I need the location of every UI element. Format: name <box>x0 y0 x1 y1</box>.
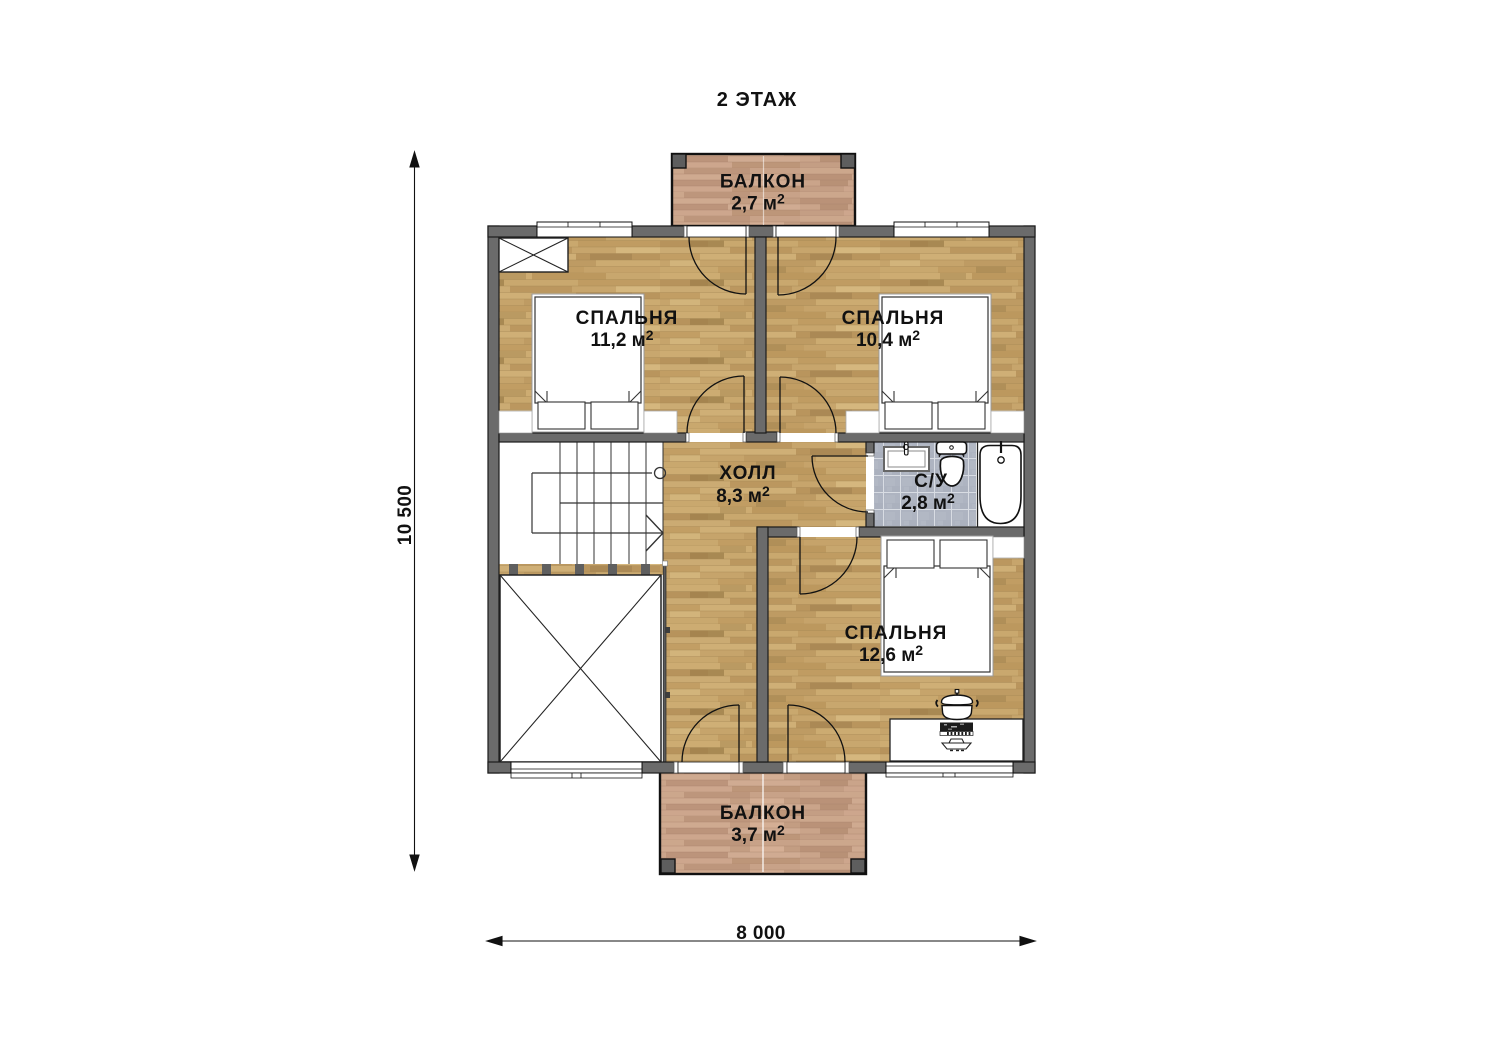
svg-text:10 500: 10 500 <box>395 485 416 546</box>
svg-text:ХОЛЛ: ХОЛЛ <box>719 463 776 484</box>
svg-text:С/У: С/У <box>914 471 948 492</box>
svg-text:СПАЛЬНЯ: СПАЛЬНЯ <box>842 308 945 329</box>
svg-text:БАЛКОН: БАЛКОН <box>720 172 806 193</box>
svg-text:8 000: 8 000 <box>736 923 786 944</box>
svg-text:3,7 м2: 3,7 м2 <box>731 822 785 846</box>
svg-text:10,4 м2: 10,4 м2 <box>856 327 920 351</box>
svg-text:2 ЭТАЖ: 2 ЭТАЖ <box>717 89 797 111</box>
svg-text:СПАЛЬНЯ: СПАЛЬНЯ <box>845 623 948 644</box>
svg-text:8,3 м2: 8,3 м2 <box>716 483 770 507</box>
svg-text:СПАЛЬНЯ: СПАЛЬНЯ <box>576 308 679 329</box>
svg-text:2,8 м2: 2,8 м2 <box>901 490 955 514</box>
svg-text:12,6 м2: 12,6 м2 <box>859 642 923 666</box>
svg-text:2,7 м2: 2,7 м2 <box>731 191 785 215</box>
svg-text:БАЛКОН: БАЛКОН <box>720 803 806 824</box>
svg-text:11,2 м2: 11,2 м2 <box>590 327 653 351</box>
